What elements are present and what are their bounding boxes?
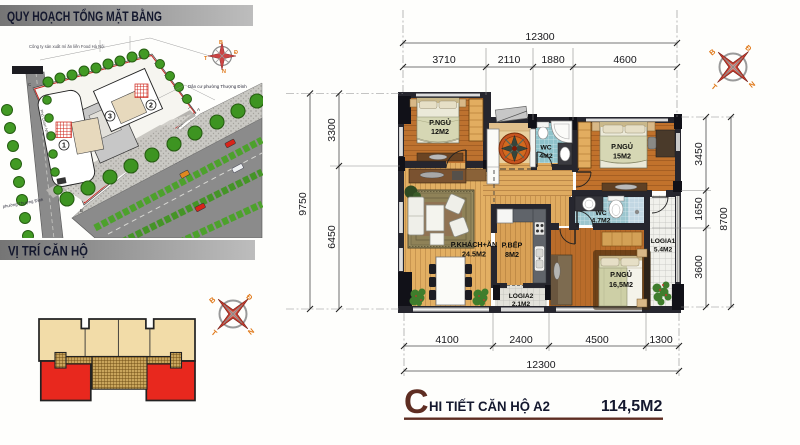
svg-text:1300: 1300	[649, 334, 673, 346]
svg-text:1: 1	[62, 143, 66, 150]
svg-text:P.NGỦ: P.NGỦ	[611, 142, 633, 151]
svg-text:P.BẾP: P.BẾP	[502, 240, 523, 250]
svg-text:A: A	[197, 107, 200, 112]
svg-text:3: 3	[108, 114, 112, 121]
svg-text:1880: 1880	[541, 54, 565, 66]
svg-text:1650: 1650	[693, 197, 705, 221]
svg-text:3600: 3600	[693, 255, 705, 279]
svg-text:4M2: 4M2	[539, 153, 552, 160]
svg-text:12300: 12300	[526, 359, 555, 371]
svg-text:WC: WC	[540, 145, 551, 152]
svg-text:QUY HOẠCH TỔNG MẶT BẰNG: QUY HOẠCH TỔNG MẶT BẰNG	[7, 9, 162, 24]
svg-text:VỊ TRÍ CĂN HỘ: VỊ TRÍ CĂN HỘ	[8, 244, 88, 259]
svg-text:2400: 2400	[509, 334, 533, 346]
svg-text:HI TIẾT CĂN HỘ A2: HI TIẾT CĂN HỘ A2	[429, 397, 550, 414]
svg-text:15M2: 15M2	[613, 152, 631, 161]
svg-text:Dân cư phường Thượng Đình: Dân cư phường Thượng Đình	[188, 84, 247, 89]
svg-text:Đ: Đ	[234, 50, 238, 56]
svg-text:B: B	[219, 40, 223, 46]
svg-text:9750: 9750	[297, 192, 309, 216]
svg-text:8700: 8700	[718, 207, 730, 231]
svg-text:LOGIA1: LOGIA1	[651, 238, 676, 245]
svg-text:4100: 4100	[435, 334, 459, 346]
svg-text:4600: 4600	[613, 54, 637, 66]
svg-text:B: B	[80, 208, 83, 213]
svg-text:3710: 3710	[432, 54, 456, 66]
svg-text:4500: 4500	[585, 334, 609, 346]
svg-text:N: N	[222, 69, 226, 75]
svg-text:3300: 3300	[326, 118, 338, 142]
svg-text:24.5M2: 24.5M2	[462, 250, 486, 259]
svg-text:8M2: 8M2	[505, 250, 519, 259]
svg-text:16,5M2: 16,5M2	[609, 280, 633, 289]
svg-text:3450: 3450	[693, 142, 705, 166]
svg-text:5.4M2: 5.4M2	[654, 247, 673, 254]
svg-text:P.NGỦ: P.NGỦ	[429, 118, 451, 127]
svg-text:P.KHÁCH+ĂN: P.KHÁCH+ĂN	[451, 240, 497, 249]
svg-text:C: C	[404, 383, 429, 421]
svg-text:LOGIA2: LOGIA2	[509, 293, 534, 300]
svg-text:P.NGỦ: P.NGỦ	[610, 270, 632, 279]
svg-text:4.7M2: 4.7M2	[592, 218, 611, 225]
svg-text:2110: 2110	[498, 54, 521, 66]
svg-text:WC: WC	[595, 210, 606, 217]
svg-text:2: 2	[149, 103, 153, 110]
svg-text:Công ty sản xuất mì ăn liền Fo: Công ty sản xuất mì ăn liền Food Hà Nội	[29, 44, 104, 49]
svg-text:114,5M2: 114,5M2	[601, 398, 662, 415]
svg-text:12M2: 12M2	[431, 127, 449, 136]
svg-text:2.1M2: 2.1M2	[512, 301, 531, 308]
svg-text:12300: 12300	[525, 31, 554, 43]
svg-text:6450: 6450	[326, 225, 338, 249]
